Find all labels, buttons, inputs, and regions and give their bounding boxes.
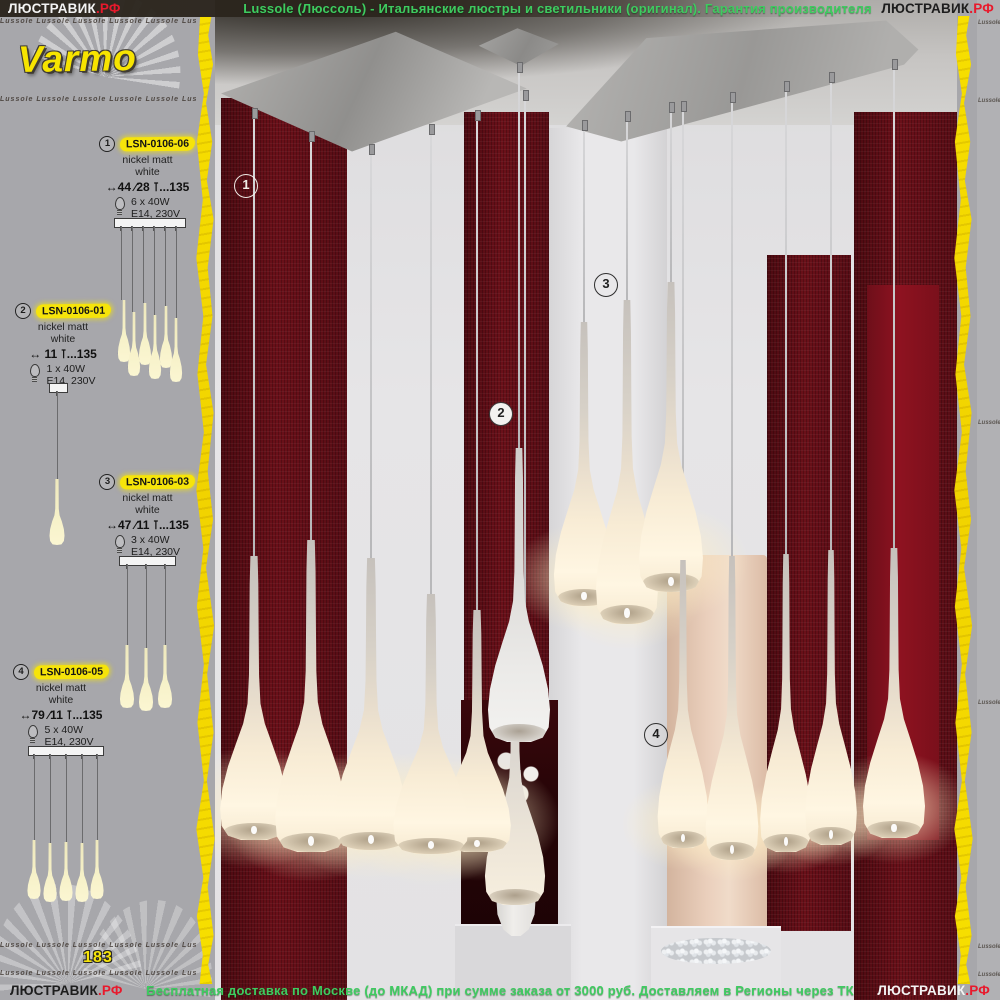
drawing-cable xyxy=(57,391,58,479)
pendant-cable xyxy=(731,94,733,558)
product-code: LSN-0106-05 xyxy=(34,665,109,680)
drawing-shade xyxy=(139,303,152,365)
bulb-icon xyxy=(30,363,41,387)
cable-fitting xyxy=(784,81,790,92)
bulb-glint xyxy=(428,841,434,849)
drawing-cable xyxy=(127,564,128,645)
drawing-shade xyxy=(27,840,41,899)
pendant-cable xyxy=(830,74,832,552)
drawing-cable xyxy=(121,226,122,300)
site-logo-bottom-right: ЛЮСТРАВИК.РФ xyxy=(877,983,990,998)
catalog-page: 1234 Lussole Lussole Lussole Lussole Lus… xyxy=(0,0,1000,1000)
pendant-cable xyxy=(626,113,628,302)
bulb-glint xyxy=(308,836,314,845)
product-shade-color: white xyxy=(8,334,118,346)
collection-title: Varmo xyxy=(18,37,138,81)
lussole-watermark-fragment: Lussole xyxy=(978,944,1000,950)
photo-marker-2: 2 xyxy=(489,402,513,426)
lussole-watermark-fragment: Lussole xyxy=(978,972,1000,978)
pendant-cable xyxy=(524,92,526,642)
drawing-shade xyxy=(59,842,73,901)
pendant-lamp xyxy=(391,594,471,854)
pendant-cable xyxy=(518,64,520,450)
lussole-watermark-fragment: Lussole xyxy=(978,20,1000,26)
pendant-cable xyxy=(476,112,478,612)
site-brand: ЛЮСТРАВИК xyxy=(877,983,965,998)
cable-fitting xyxy=(829,72,835,83)
lussole-watermark-row: Lussole Lussole Lussole Lussole Lussole … xyxy=(0,970,196,977)
lussole-watermark-fragment: Lussole xyxy=(978,700,1000,706)
drawing-mounting-bar xyxy=(49,383,68,393)
product-bulbs: 3 x 40W xyxy=(131,534,180,546)
product-bulbs: 6 x 40W xyxy=(131,196,180,208)
product-dimensions: ↔79 ∕11 ⊺...135 xyxy=(5,708,117,722)
bulb-glint xyxy=(668,577,673,586)
product-bulbs: 5 x 40W xyxy=(44,724,93,736)
pendant-cable xyxy=(893,61,895,550)
drawing-shade xyxy=(160,306,173,368)
site-logo-top-right: ЛЮСТРАВИК.РФ xyxy=(881,1,994,16)
product-code: LSN-0106-06 xyxy=(120,137,195,152)
crystal-fill xyxy=(661,938,771,964)
drawing-cable xyxy=(66,754,67,842)
pendant-cable xyxy=(310,133,312,542)
product-shade-color: white xyxy=(100,505,195,517)
bulb-glint xyxy=(624,608,629,618)
drawing-cable xyxy=(143,226,144,303)
cable-fitting xyxy=(892,59,898,70)
product-finish: nickel matt xyxy=(100,155,195,167)
drawing-cable xyxy=(165,226,166,306)
product-card: 4 LSN-0106-05 nickel matt white ↔79 ∕11 … xyxy=(5,664,117,748)
cable-fitting xyxy=(582,120,588,131)
bulb-icon xyxy=(115,196,126,220)
bulb-glint xyxy=(891,824,896,833)
cable-fitting xyxy=(625,111,631,122)
product-code: LSN-0106-03 xyxy=(120,475,195,490)
room-photo: 1234 xyxy=(215,0,957,1000)
lussole-watermark-fragment: Lussole xyxy=(978,98,1000,104)
drawing-shade xyxy=(149,315,162,379)
product-card: 3 LSN-0106-03 nickel matt white ↔47 ∕11 … xyxy=(100,474,195,558)
drawing-cable xyxy=(176,226,177,318)
product-card: 2 LSN-0106-01 nickel matt white ↔ 11 ⊺..… xyxy=(8,303,118,387)
shade-rim xyxy=(489,889,542,905)
right-margin-strip xyxy=(977,0,1000,1000)
site-brand: ЛЮСТРАВИК xyxy=(881,1,969,16)
drawing-shade xyxy=(170,318,183,382)
drawing-cable xyxy=(97,754,98,840)
site-tld: .РФ xyxy=(965,983,990,998)
drawing-cable xyxy=(34,754,35,840)
bulb-glint xyxy=(581,592,586,601)
product-card: 1 LSN-0106-06 nickel matt white ↔44 ∕28 … xyxy=(100,136,195,220)
top-banner: Lussole (Люссоль) - Итальянские люстры и… xyxy=(0,0,1000,17)
product-code: LSN-0106-01 xyxy=(36,304,111,319)
site-brand: ЛЮСТРАВИК xyxy=(8,1,96,16)
site-tld: .РФ xyxy=(98,983,123,998)
drawing-shade xyxy=(49,479,65,545)
product-shade-color: white xyxy=(100,167,195,179)
product-finish: nickel matt xyxy=(8,322,118,334)
drawing-cable xyxy=(154,226,155,315)
pendant-cable xyxy=(670,104,672,284)
cable-fitting xyxy=(523,90,529,101)
lussole-watermark-row: Lussole Lussole Lussole Lussole Lussole … xyxy=(0,96,196,103)
product-shade-color: white xyxy=(5,695,117,707)
pendant-cable xyxy=(785,83,787,556)
drawing-cable xyxy=(146,564,147,648)
cable-fitting xyxy=(681,101,687,112)
site-logo-top-left: ЛЮСТРАВИК.РФ xyxy=(8,1,121,16)
page-number: 183 xyxy=(0,949,196,967)
cable-fitting xyxy=(309,131,315,142)
site-brand: ЛЮСТРАВИК xyxy=(10,983,98,998)
cable-fitting xyxy=(429,124,435,135)
drawing-shade xyxy=(139,648,154,711)
drawing-cable xyxy=(50,754,51,843)
drawing-shade xyxy=(90,840,104,899)
photo-marker-1: 1 xyxy=(234,174,258,198)
pendant-cable xyxy=(583,122,585,324)
photo-marker-3: 3 xyxy=(594,273,618,297)
bulb-glint xyxy=(251,826,257,835)
cable-fitting xyxy=(669,102,675,113)
bulb-icon xyxy=(28,724,39,748)
bottom-banner: Бесплатная доставка по Москве (до МКАД) … xyxy=(0,981,1000,1000)
drawing-shade xyxy=(158,645,173,708)
drawing-shade xyxy=(75,843,89,902)
cable-fitting xyxy=(730,92,736,103)
bottom-banner-text: Бесплатная доставка по Москве (до МКАД) … xyxy=(0,983,1000,998)
site-tld: .РФ xyxy=(969,1,994,16)
product-number-badge: 2 xyxy=(15,303,31,319)
lussole-watermark-row: Lussole Lussole Lussole Lussole Lussole … xyxy=(0,18,196,25)
product-dimensions: ↔44 ∕28 ⊺...135 xyxy=(100,180,195,194)
shade-rim xyxy=(492,724,546,742)
drawing-shade xyxy=(43,843,57,902)
photo-marker-4: 4 xyxy=(644,723,668,747)
product-bulbs: 1 x 40W xyxy=(46,363,95,375)
drawing-cable xyxy=(82,754,83,843)
bulb-icon xyxy=(115,534,126,558)
top-banner-text: Lussole (Люссоль) - Итальянские люстры и… xyxy=(115,1,1000,16)
spec-sidebar: Lussole Lussole Lussole Lussole Lussole … xyxy=(0,0,215,1000)
product-finish: nickel matt xyxy=(5,683,117,695)
site-tld: .РФ xyxy=(96,1,121,16)
product-number-badge: 1 xyxy=(99,136,115,152)
drawing-shade xyxy=(128,312,141,376)
product-number-badge: 3 xyxy=(99,474,115,490)
drawing-cable xyxy=(132,226,133,312)
cable-fitting xyxy=(475,110,481,121)
product-finish: nickel matt xyxy=(100,493,195,505)
site-logo-bottom-left: ЛЮСТРАВИК.РФ xyxy=(10,983,123,998)
drawing-cable xyxy=(165,564,166,645)
pendant-cable xyxy=(370,146,372,560)
lussole-watermark-row: Lussole Lussole Lussole Lussole Lussole … xyxy=(0,942,196,949)
product-number-badge: 4 xyxy=(13,664,29,680)
bulb-glint xyxy=(474,840,480,847)
product-dimensions: ↔ 11 ⊺...135 xyxy=(8,347,118,361)
drawing-shade xyxy=(120,645,135,708)
pendant-cable xyxy=(430,126,432,596)
cable-fitting xyxy=(517,62,523,73)
cable-fitting xyxy=(252,108,258,119)
drawing-shade xyxy=(118,300,131,362)
cable-fitting xyxy=(369,144,375,155)
product-dimensions: ↔47 ∕11 ⊺...135 xyxy=(100,518,195,532)
lussole-watermark-fragment: Lussole xyxy=(978,420,1000,426)
